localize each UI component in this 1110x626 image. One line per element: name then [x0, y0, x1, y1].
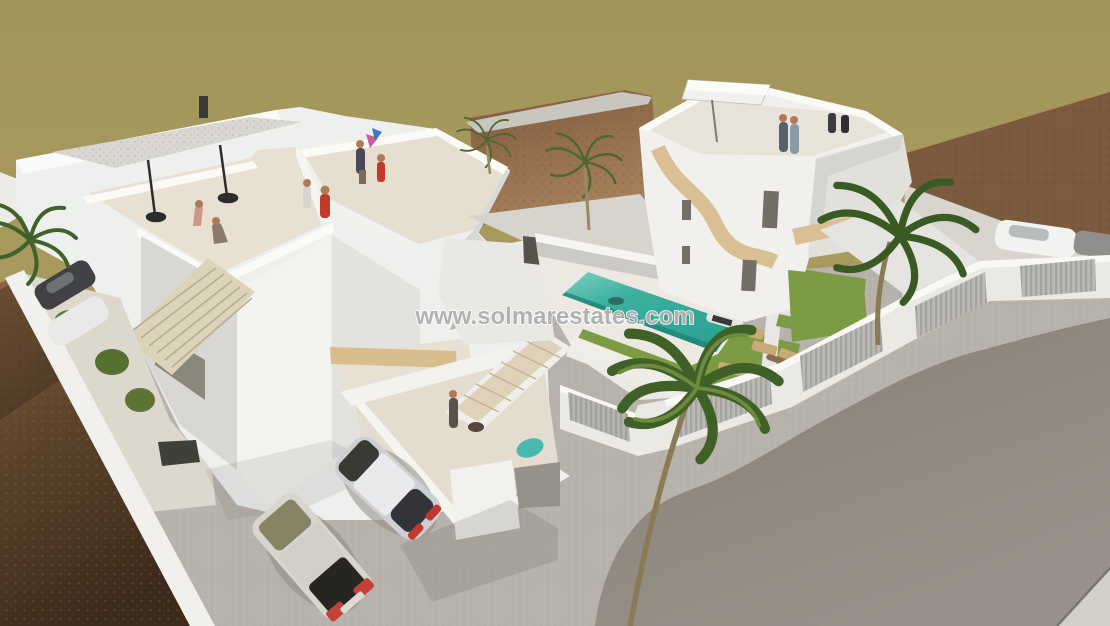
- svg-text:www.solmarestates.com: www.solmarestates.com: [414, 303, 694, 330]
